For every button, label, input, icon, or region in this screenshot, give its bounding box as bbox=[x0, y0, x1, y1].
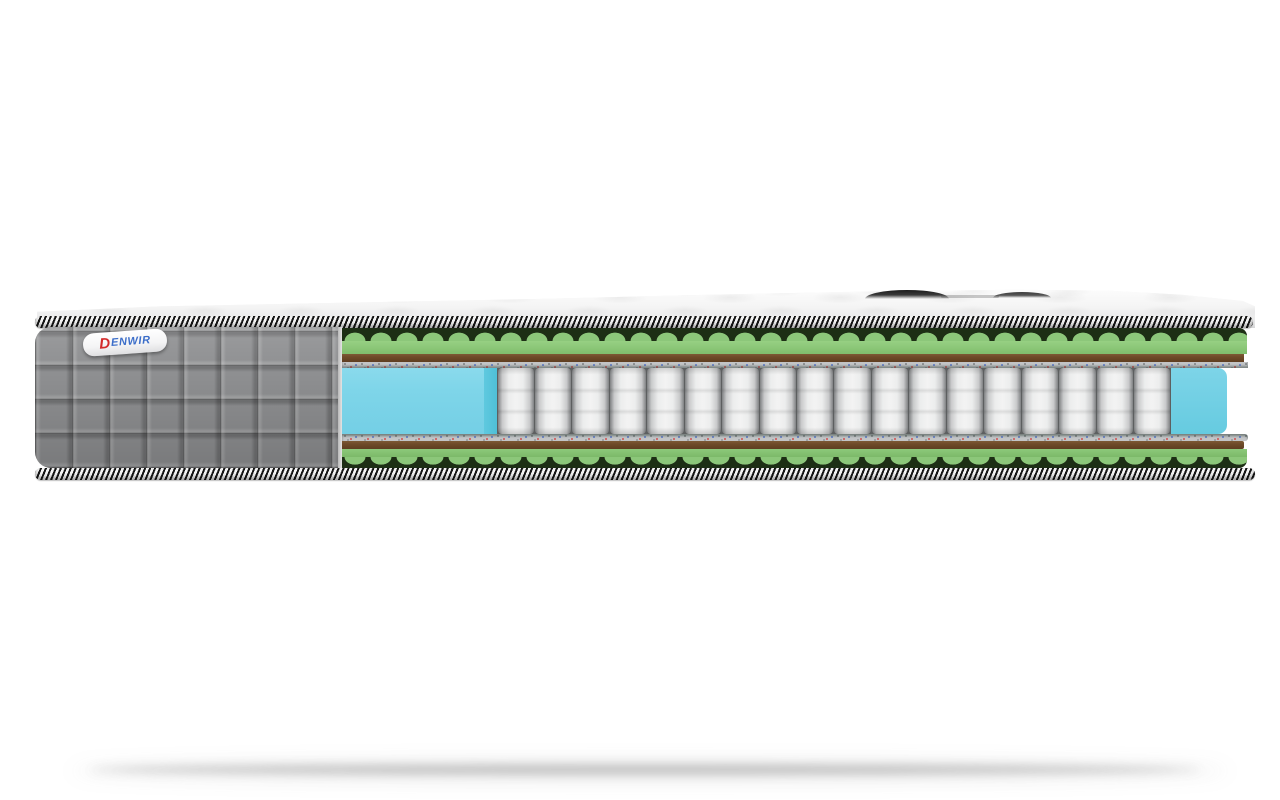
pocket-spring bbox=[722, 368, 758, 434]
pocket-spring bbox=[498, 368, 534, 434]
pocket-spring bbox=[984, 368, 1020, 434]
foam-layer-bottom bbox=[342, 449, 1247, 468]
pocket-spring bbox=[760, 368, 796, 434]
pocket-springs bbox=[497, 368, 1171, 434]
floor-shadow bbox=[90, 765, 1200, 774]
mattress-cutaway-photo: D ENWIR bbox=[35, 283, 1258, 480]
spring-core bbox=[342, 368, 1227, 434]
pocket-spring bbox=[610, 368, 646, 434]
pocket-spring bbox=[1134, 368, 1170, 434]
pocket-spring bbox=[909, 368, 945, 434]
side-support-foam-edge bbox=[484, 368, 497, 434]
pocket-spring bbox=[1059, 368, 1095, 434]
pocket-spring bbox=[834, 368, 870, 434]
brand-name: ENWIR bbox=[111, 335, 151, 349]
brand-initial: D bbox=[99, 336, 111, 352]
foam-layer-top bbox=[342, 328, 1247, 354]
pocket-spring bbox=[872, 368, 908, 434]
side-support-foam-left bbox=[342, 368, 497, 434]
pocket-spring bbox=[647, 368, 683, 434]
bottom-border-tape bbox=[35, 468, 1255, 480]
product-photo-stage: D ENWIR bbox=[0, 0, 1280, 800]
pocket-spring bbox=[685, 368, 721, 434]
spunbond-layer-bottom bbox=[342, 434, 1248, 441]
foam-wave-texture bbox=[342, 328, 1247, 341]
cross-section bbox=[342, 328, 1250, 468]
foam-wave-texture bbox=[342, 457, 1247, 468]
felt-layer-top bbox=[342, 354, 1244, 362]
pocket-spring bbox=[1097, 368, 1133, 434]
handle bbox=[941, 295, 999, 298]
pocket-spring bbox=[947, 368, 983, 434]
quilted-side-panel: D ENWIR bbox=[35, 327, 342, 468]
pocket-spring bbox=[1022, 368, 1058, 434]
side-support-foam-right bbox=[1171, 368, 1227, 434]
felt-layer-bottom bbox=[342, 441, 1244, 449]
handle bbox=[993, 292, 1051, 298]
brand-label: D ENWIR bbox=[82, 328, 167, 357]
pocket-spring bbox=[535, 368, 571, 434]
pocket-spring bbox=[797, 368, 833, 434]
pocket-spring bbox=[572, 368, 608, 434]
